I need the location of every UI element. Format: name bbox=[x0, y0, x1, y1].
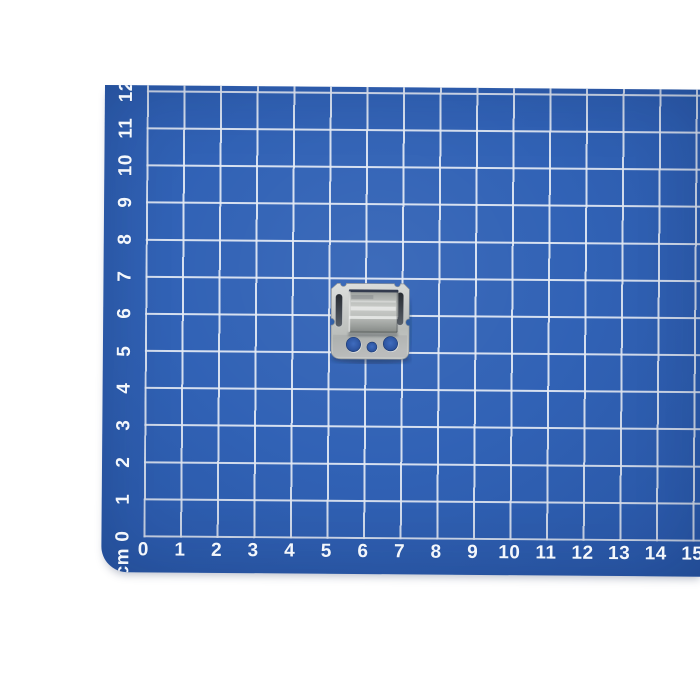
clip-bridge bbox=[349, 289, 399, 333]
ruler-label: 6 bbox=[357, 541, 368, 563]
ruler-label: 8 bbox=[115, 234, 137, 245]
ruler-label: 2 bbox=[113, 457, 135, 468]
ruler-label: 3 bbox=[248, 540, 259, 562]
ruler-label: 1 bbox=[113, 494, 135, 505]
ruler-label: 12 bbox=[571, 543, 593, 565]
ruler-label: 10 bbox=[498, 542, 520, 564]
ruler-label: 2 bbox=[211, 540, 222, 562]
ruler-label: 14 bbox=[645, 543, 667, 565]
ruler-label: 9 bbox=[467, 542, 478, 564]
ruler-label: 11 bbox=[116, 118, 138, 139]
ruler-label: 12 bbox=[116, 85, 138, 102]
ruler-label: 3 bbox=[113, 420, 135, 431]
ruler-label: 7 bbox=[394, 541, 405, 563]
ruler-label: 13 bbox=[608, 543, 630, 565]
ruler-label: 5 bbox=[321, 541, 332, 563]
ruler-label: 10 bbox=[115, 154, 137, 176]
metal-clip bbox=[328, 280, 413, 365]
ruler-label: 0 bbox=[112, 531, 134, 542]
ruler-label: 4 bbox=[284, 540, 295, 562]
unit-label: cm bbox=[112, 548, 134, 577]
ruler-label: 9 bbox=[115, 197, 137, 208]
ruler-label: 6 bbox=[114, 308, 136, 319]
ruler-label: 4 bbox=[114, 383, 136, 394]
clip-slot-left bbox=[335, 294, 342, 327]
ruler-label: 7 bbox=[114, 271, 136, 282]
ruler-label: 0 bbox=[138, 539, 149, 561]
ruler-label: 15 bbox=[681, 544, 700, 566]
ruler-label: 11 bbox=[535, 542, 556, 564]
cutting-mat: 0 1 2 3 4 5 6 7 8 9 10 11 12 13 14 15 cm… bbox=[101, 85, 700, 577]
ruler-label: 8 bbox=[431, 542, 442, 564]
ruler-label: 1 bbox=[174, 540, 185, 562]
ruler-label: 5 bbox=[114, 346, 136, 357]
product-photo: 0 1 2 3 4 5 6 7 8 9 10 11 12 13 14 15 cm… bbox=[0, 0, 700, 700]
